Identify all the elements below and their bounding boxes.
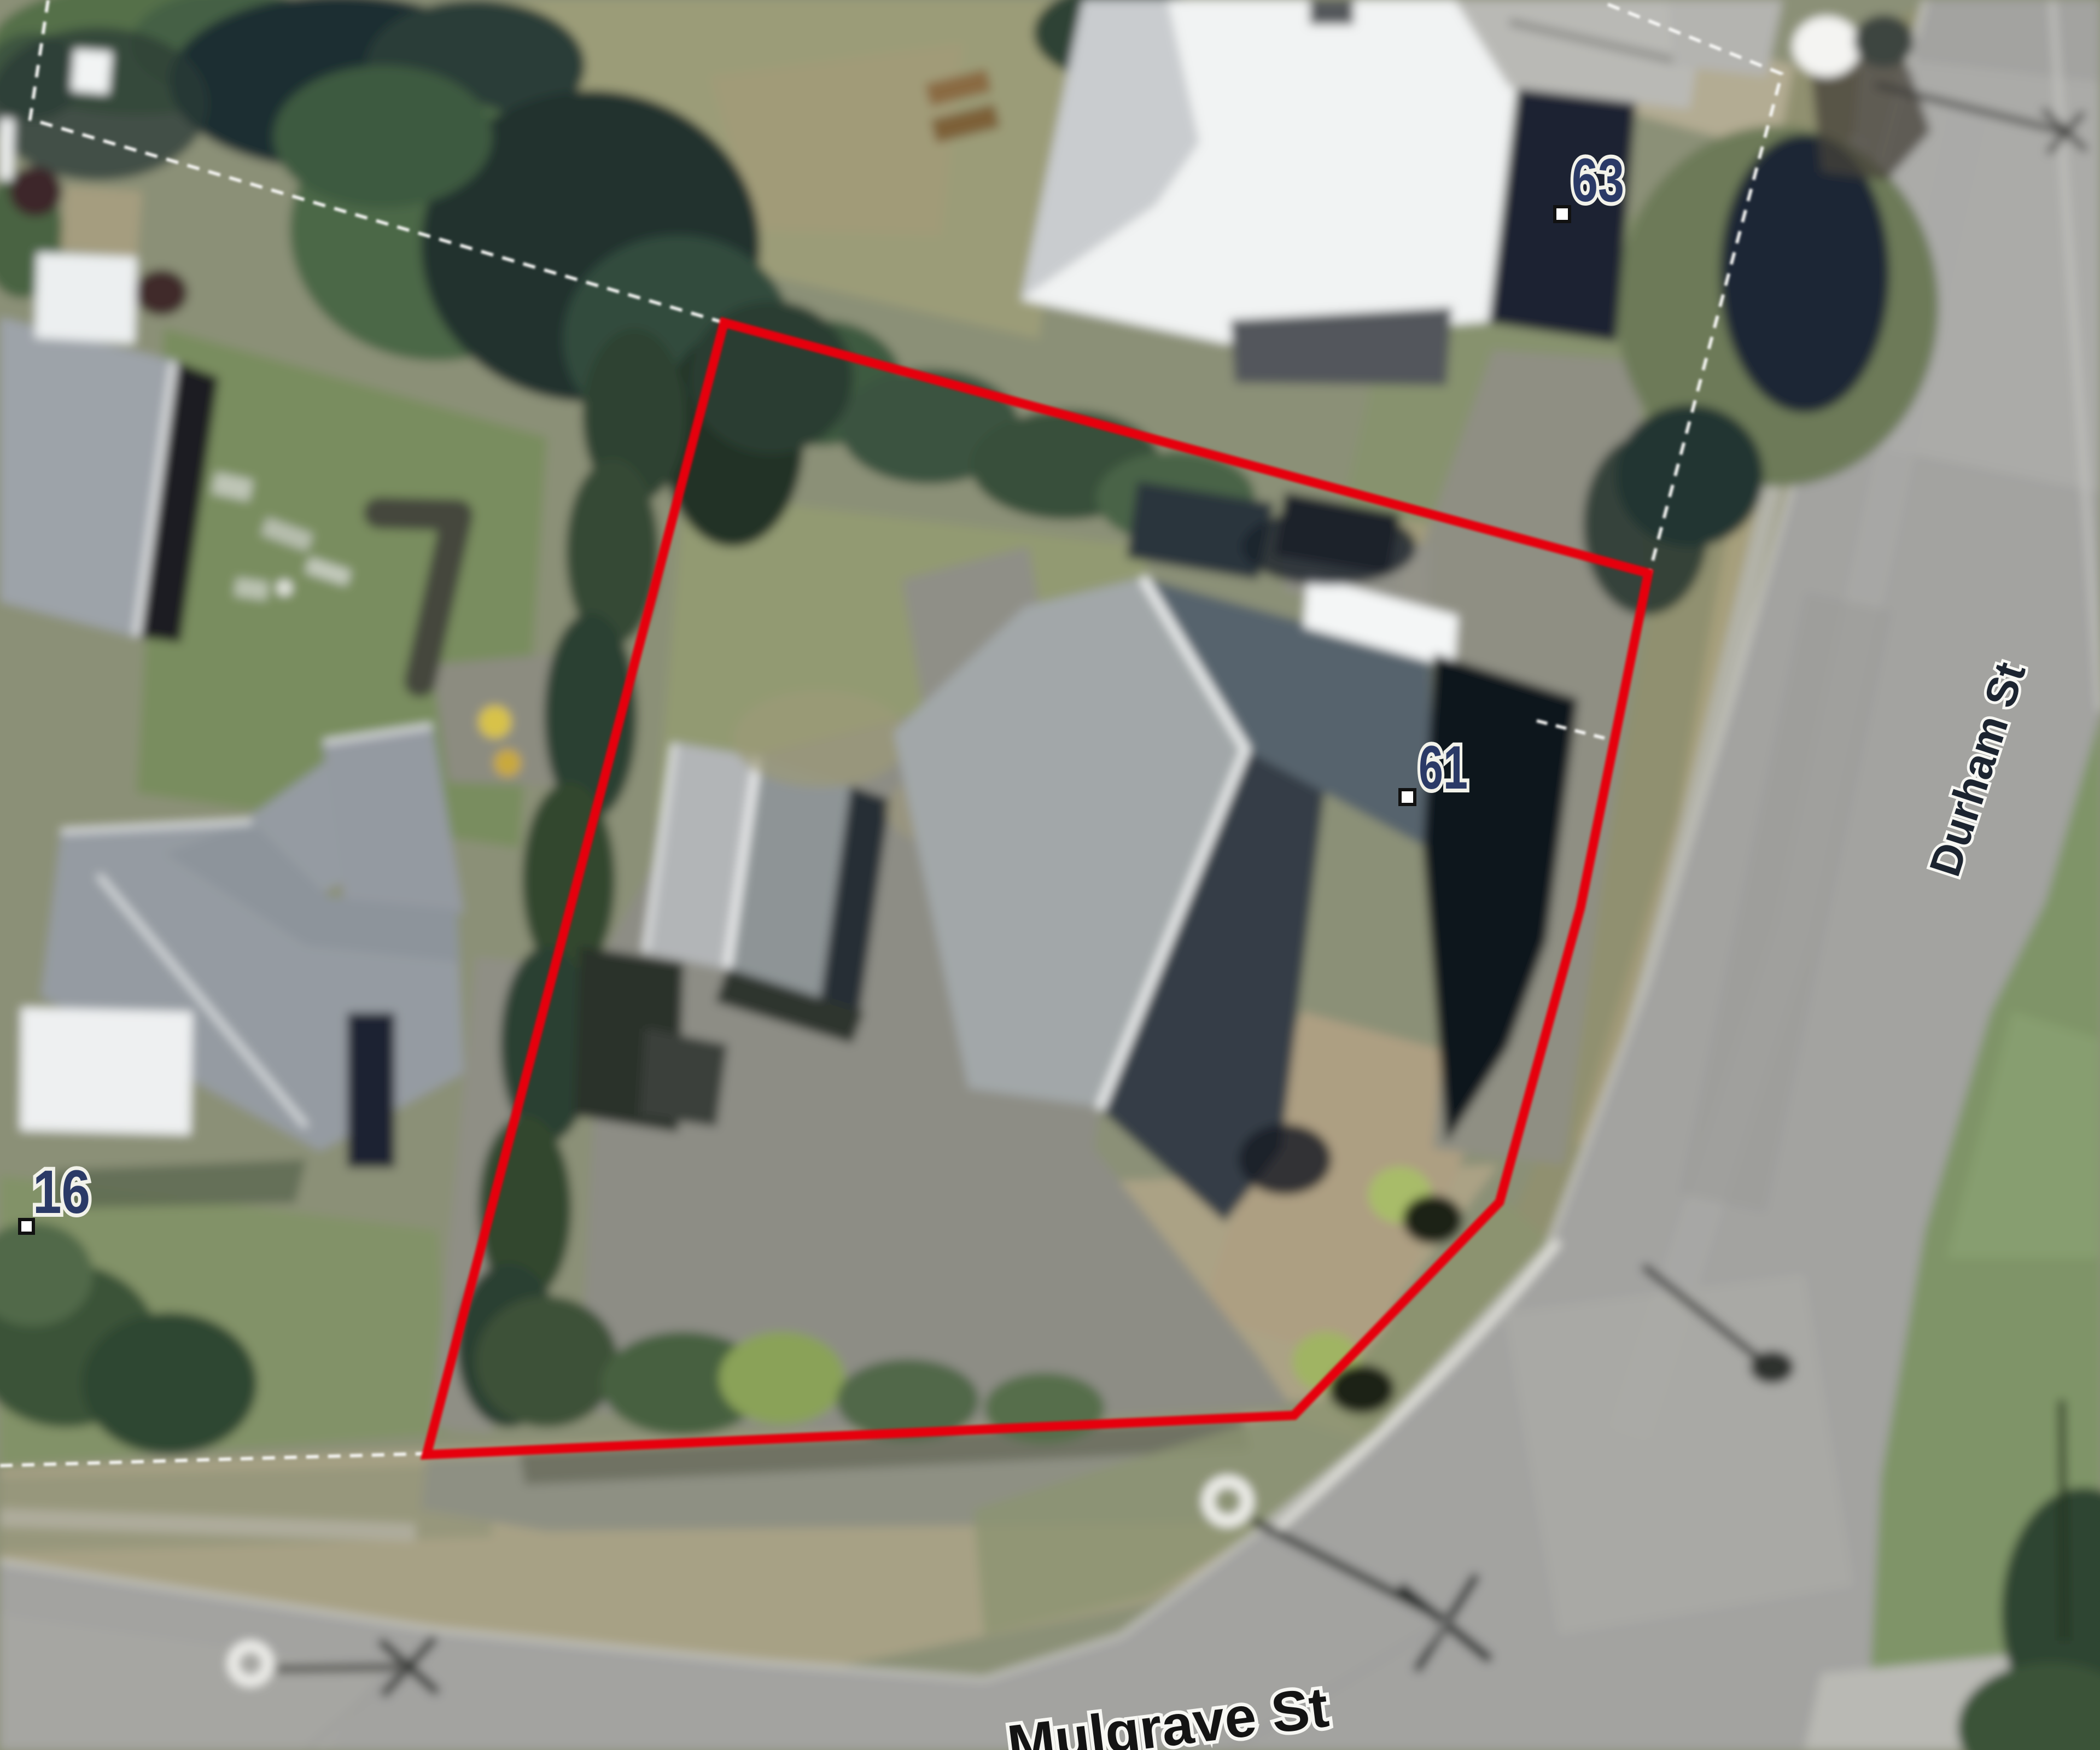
svg-text:61: 61 — [1419, 733, 1468, 802]
svg-text:16: 16 — [33, 1158, 90, 1226]
svg-text:63: 63 — [1572, 146, 1624, 214]
